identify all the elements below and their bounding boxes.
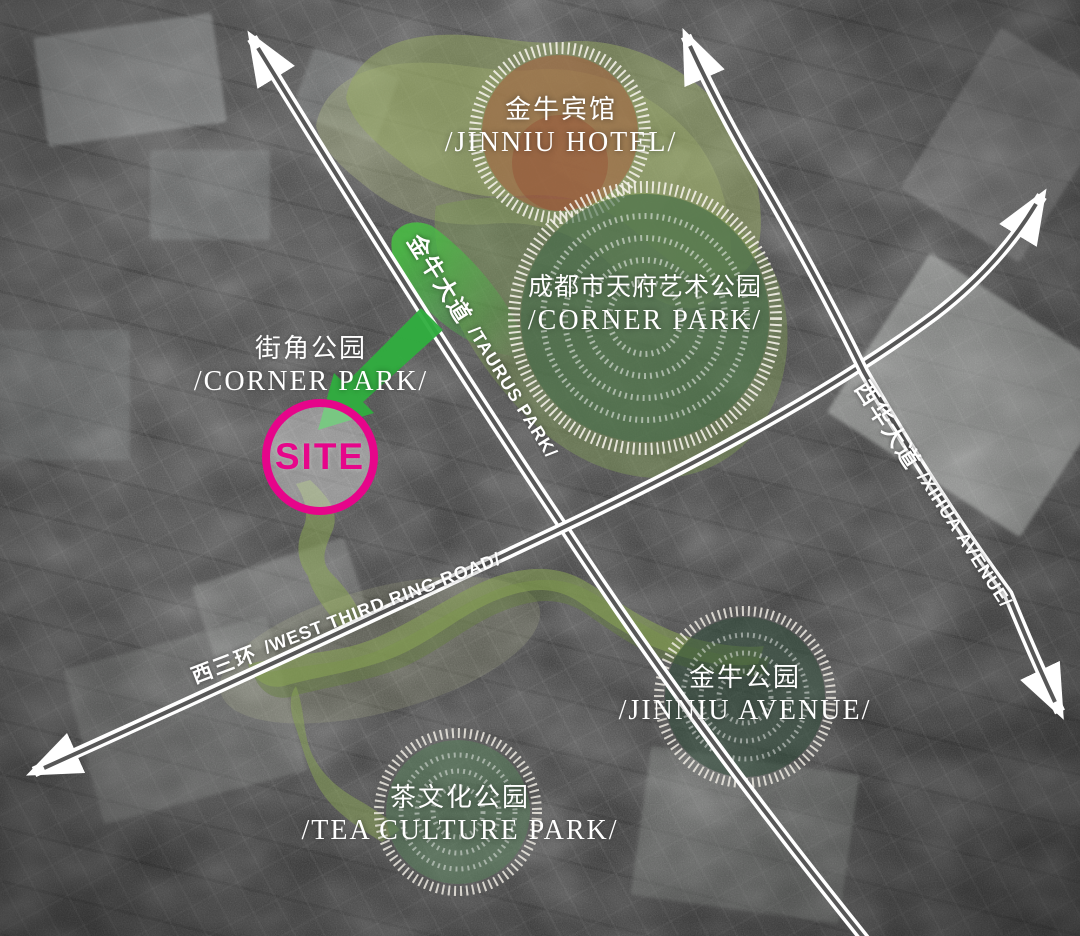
label-tea-culture-park: 茶文化公园 /TEA CULTURE PARK/: [301, 781, 618, 847]
corner-park-name-en: /CORNER PARK/: [194, 365, 428, 398]
site-marker-label: SITE: [275, 436, 365, 478]
label-tianfu-art-park: 成都市天府艺术公园 /CORNER PARK/: [528, 271, 762, 337]
label-jinniu-park: 金牛公园 /JINNIU AVENUE/: [619, 661, 872, 727]
jinniu-park-name-zh: 金牛公园: [619, 661, 872, 694]
jinniu-hotel-name-en: /JINNIU HOTEL/: [445, 126, 678, 159]
jinniu-hotel-name-zh: 金牛宾馆: [445, 93, 678, 126]
label-corner-park: 街角公园 /CORNER PARK/: [194, 332, 428, 398]
tea-park-name-zh: 茶文化公园: [301, 781, 618, 814]
tianfu-name-zh: 成都市天府艺术公园: [528, 271, 762, 304]
tianfu-name-en: /CORNER PARK/: [528, 304, 762, 337]
corner-park-name-zh: 街角公园: [194, 332, 428, 365]
tea-park-name-en: /TEA CULTURE PARK/: [301, 814, 618, 847]
label-jinniu-hotel: 金牛宾馆 /JINNIU HOTEL/: [445, 93, 678, 159]
jinniu-park-name-en: /JINNIU AVENUE/: [619, 694, 872, 727]
site-analysis-map: 金牛宾馆 /JINNIU HOTEL/ 成都市天府艺术公园 /CORNER PA…: [0, 0, 1080, 936]
